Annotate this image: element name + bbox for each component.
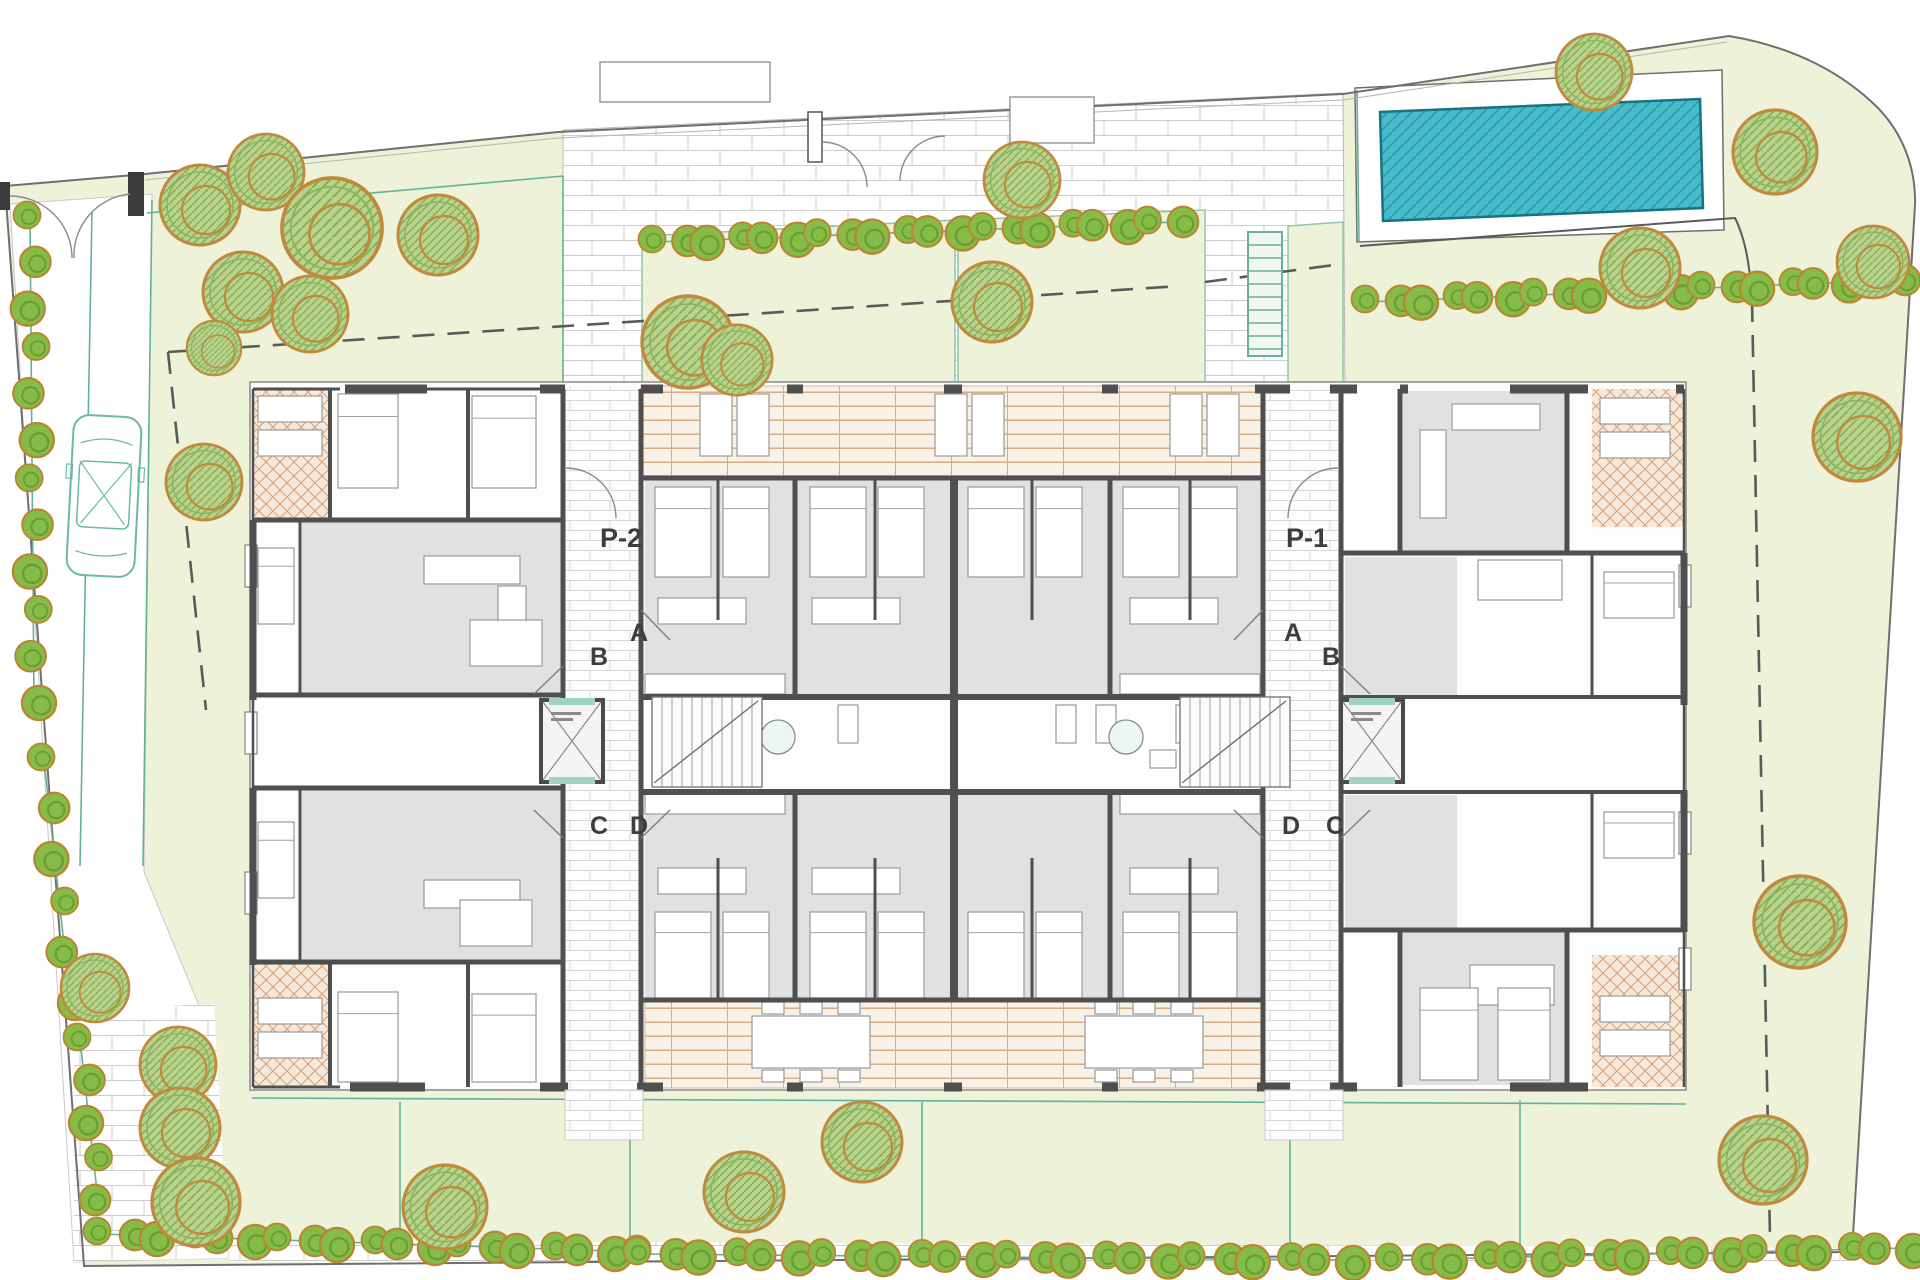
furniture-item xyxy=(1130,868,1218,894)
furniture-item xyxy=(258,998,322,1024)
parked-car xyxy=(61,414,147,578)
furniture-item xyxy=(1420,430,1446,518)
hedge-bush xyxy=(969,213,996,240)
hedge-bush xyxy=(22,686,56,720)
furniture-item xyxy=(1171,1002,1193,1014)
furniture-item xyxy=(1130,598,1218,624)
furniture-item xyxy=(645,794,785,814)
furniture-item xyxy=(1095,1002,1117,1014)
tree xyxy=(282,178,382,278)
furniture-item xyxy=(762,1002,784,1014)
hedge-bush xyxy=(1677,1238,1708,1269)
hedge-bush xyxy=(1896,1234,1920,1268)
bed xyxy=(810,912,866,998)
furniture-item xyxy=(812,868,900,894)
hedge-bush xyxy=(85,1144,112,1171)
hedge-bush xyxy=(1798,268,1829,299)
hedge-bush xyxy=(1376,1244,1403,1271)
hedge-bush xyxy=(1114,1243,1145,1274)
architectural-site-plan: P-2 P-1 A B C D A B D C xyxy=(0,0,1920,1280)
wall-structure xyxy=(600,62,770,102)
hedge-bush xyxy=(1051,1244,1085,1278)
hedge-bush xyxy=(1797,1236,1831,1270)
tree xyxy=(702,325,772,395)
furniture-item xyxy=(1133,1002,1155,1014)
furniture-item xyxy=(424,556,520,584)
furniture-item xyxy=(1085,1016,1203,1068)
tree xyxy=(166,444,242,520)
door-a-label-left: A xyxy=(630,619,648,647)
tree xyxy=(187,321,241,375)
tree xyxy=(1600,228,1680,308)
hedge-bush xyxy=(1077,210,1108,241)
hedge-bush xyxy=(1433,1244,1467,1278)
bed xyxy=(1036,487,1082,577)
hedge-bush xyxy=(1740,272,1774,306)
furniture-item xyxy=(1056,705,1076,743)
bed xyxy=(1498,988,1550,1080)
hedge-bush xyxy=(1495,1242,1526,1273)
exit-apron-left xyxy=(565,1090,643,1140)
hedge-bush xyxy=(681,1240,715,1274)
hedge-bush xyxy=(20,247,51,278)
furniture-item xyxy=(1600,398,1670,424)
tree xyxy=(1754,876,1846,968)
bed xyxy=(1420,988,1478,1080)
hedge-bush xyxy=(382,1229,413,1260)
hedge-bush xyxy=(74,1065,105,1096)
furniture-item xyxy=(258,1032,322,1058)
tree xyxy=(398,195,478,275)
tree xyxy=(1733,110,1817,194)
furniture-item xyxy=(935,394,967,456)
hedge-bush xyxy=(993,1241,1020,1268)
door-b-label-left: B xyxy=(590,643,608,671)
bed xyxy=(655,487,711,577)
furniture-item xyxy=(460,900,532,946)
tree xyxy=(1719,1116,1807,1204)
furniture-item xyxy=(972,394,1004,456)
hedge-bush xyxy=(855,219,889,253)
furniture-item xyxy=(1600,996,1670,1022)
furniture-item xyxy=(1600,432,1670,458)
furniture-item xyxy=(1133,1070,1155,1082)
hedge-bush xyxy=(745,1240,776,1271)
bed xyxy=(1604,812,1674,858)
bed xyxy=(472,396,536,488)
hedge-bush xyxy=(264,1224,291,1251)
hedge-bush xyxy=(866,1242,900,1276)
door-d-label-left: D xyxy=(630,812,648,840)
bed xyxy=(878,487,924,577)
door-d-label-right: D xyxy=(1282,812,1300,840)
furniture-item xyxy=(1120,794,1260,814)
furniture-item xyxy=(470,620,542,666)
window xyxy=(245,712,257,754)
hedge-bush xyxy=(500,1234,534,1268)
tree xyxy=(61,954,129,1022)
exit-apron-right xyxy=(1265,1090,1343,1140)
bed xyxy=(338,394,398,488)
hedge-bush xyxy=(13,202,40,229)
bed xyxy=(1191,487,1237,577)
tree xyxy=(1556,34,1632,110)
furniture-item xyxy=(258,396,322,422)
hedge-bush xyxy=(22,509,53,540)
furniture-item xyxy=(838,705,858,743)
furniture-item xyxy=(658,598,746,624)
hedge-bush xyxy=(11,292,45,326)
furniture-item xyxy=(737,394,769,456)
bed xyxy=(723,487,769,577)
furniture-item xyxy=(812,598,900,624)
furniture-item xyxy=(1207,394,1239,456)
bed xyxy=(810,487,866,577)
hedge-bush xyxy=(808,1239,835,1266)
tree xyxy=(984,142,1060,218)
furniture-item xyxy=(1452,404,1540,430)
hedge-bush xyxy=(15,641,46,672)
hedge-bush xyxy=(1178,1242,1205,1269)
hedge-bush xyxy=(1134,207,1161,234)
door-c-label-left: C xyxy=(590,812,608,840)
hedge-bush xyxy=(64,1024,91,1051)
bed xyxy=(258,548,294,624)
elevator-right xyxy=(1341,698,1403,784)
furniture-item xyxy=(1478,560,1562,600)
bed xyxy=(723,912,769,998)
site-plan-canvas: P-2 P-1 A B C D A B D C xyxy=(0,0,1920,1280)
hedge-bush xyxy=(1299,1244,1330,1275)
furniture-item xyxy=(645,674,785,694)
building xyxy=(245,382,1691,1140)
portal-p2-label: P-2 xyxy=(600,523,642,553)
hedge-bush xyxy=(1404,286,1438,320)
furniture-item xyxy=(1120,674,1260,694)
outdoor-stair xyxy=(1248,232,1282,356)
hedge-bush xyxy=(1572,279,1606,313)
furniture-item xyxy=(752,1016,870,1068)
tree xyxy=(140,1088,220,1168)
hedge-bush xyxy=(1558,1239,1585,1266)
hedge-bush xyxy=(1462,282,1493,313)
furniture-item xyxy=(1095,1070,1117,1082)
door-c-label-right: C xyxy=(1326,812,1344,840)
hedge-bush xyxy=(690,226,724,260)
hedge-bush xyxy=(639,226,666,253)
hedge-bush xyxy=(912,216,943,247)
hedge-bush xyxy=(13,554,47,588)
tree xyxy=(822,1102,902,1182)
hedge-bush xyxy=(28,744,55,771)
hedge-bush xyxy=(20,423,54,457)
tree xyxy=(272,276,348,352)
hedge-bush xyxy=(25,596,52,623)
hedge-bush xyxy=(624,1238,651,1265)
tree xyxy=(952,262,1032,342)
bed xyxy=(1036,912,1082,998)
bed xyxy=(1123,912,1179,998)
hedge-bush xyxy=(1740,1235,1767,1262)
bed xyxy=(258,822,294,898)
bed xyxy=(1191,912,1237,998)
hedge-bush xyxy=(1520,279,1547,306)
bed xyxy=(655,912,711,998)
bed xyxy=(968,912,1024,998)
furniture-item xyxy=(658,868,746,894)
tree xyxy=(704,1152,784,1232)
hedge-bush xyxy=(1615,1240,1649,1274)
shower xyxy=(761,720,795,754)
furniture-item xyxy=(800,1070,822,1082)
hedge-bush xyxy=(39,793,70,824)
door-b-label-right: B xyxy=(1322,643,1340,671)
hedge-bush xyxy=(1859,1233,1890,1264)
bed xyxy=(1604,572,1674,618)
hedge-bush xyxy=(320,1228,354,1262)
furniture-item xyxy=(1170,394,1202,456)
hedge-bush xyxy=(80,1185,111,1216)
bed xyxy=(338,992,398,1082)
shower xyxy=(1109,720,1143,754)
furniture-item xyxy=(1600,1030,1670,1056)
door-a-label-right: A xyxy=(1284,619,1302,647)
hedge-bush xyxy=(747,222,778,253)
hedge-bush xyxy=(930,1241,961,1272)
bed xyxy=(472,994,536,1082)
hedge-bush xyxy=(1688,272,1715,299)
hedge-bush xyxy=(16,464,43,491)
bed xyxy=(878,912,924,998)
hedge-bush xyxy=(13,378,44,409)
hedge-bush xyxy=(1168,207,1199,238)
room-floor xyxy=(1345,557,1457,695)
swimming-pool xyxy=(1380,99,1703,221)
bed xyxy=(1123,487,1179,577)
hedge-bush xyxy=(23,333,50,360)
furniture-item xyxy=(1171,1070,1193,1082)
hedge-bush xyxy=(804,219,831,246)
furniture-item xyxy=(838,1070,860,1082)
hedge-bush xyxy=(1236,1245,1270,1279)
furniture-item xyxy=(700,394,732,456)
tree xyxy=(152,1158,240,1246)
hedge-bush xyxy=(84,1218,111,1245)
elevator-left xyxy=(541,698,603,784)
portal-p1-label: P-1 xyxy=(1286,523,1328,553)
lawn-panel-small xyxy=(1288,222,1343,388)
bed xyxy=(968,487,1024,577)
hedge-bush xyxy=(562,1235,593,1266)
tree xyxy=(1837,226,1909,298)
hedge-bush xyxy=(1336,1246,1370,1280)
furniture-item xyxy=(1150,750,1176,768)
hedge-bush xyxy=(34,842,68,876)
tree xyxy=(403,1165,487,1249)
tree xyxy=(1813,393,1901,481)
hedge-bush xyxy=(1352,286,1379,313)
furniture-item xyxy=(258,430,322,456)
furniture-item xyxy=(800,1002,822,1014)
furniture-item xyxy=(838,1002,860,1014)
room-floor xyxy=(1345,795,1457,928)
hedge-bush xyxy=(51,888,78,915)
wall-structure xyxy=(1010,97,1094,143)
hedge-bush xyxy=(69,1106,103,1140)
furniture-item xyxy=(762,1070,784,1082)
